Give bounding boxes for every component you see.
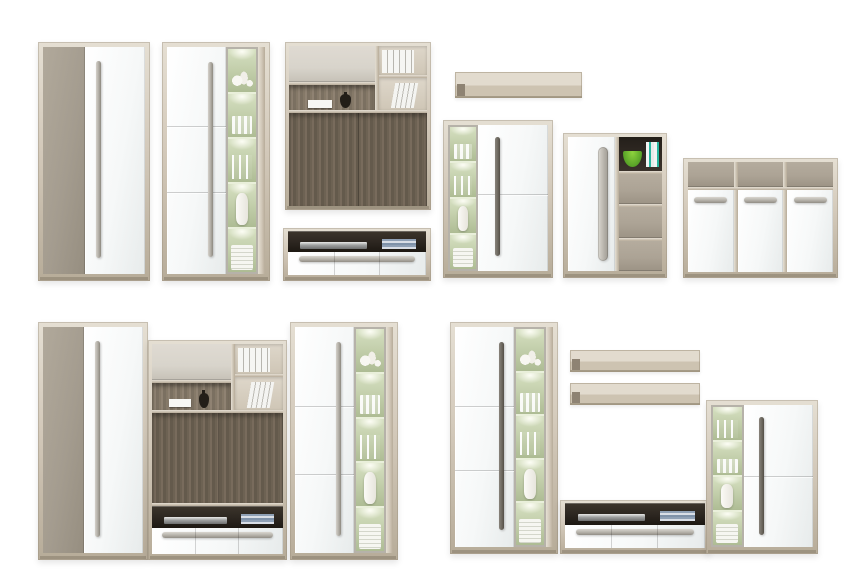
open-shelves	[379, 46, 427, 110]
display-shelf-glasses	[450, 127, 476, 163]
display-shelf-glasses	[713, 442, 742, 477]
display-cabinet-glass-right	[162, 42, 270, 281]
drawer-divider	[195, 528, 196, 554]
book-stack	[646, 142, 659, 166]
sideboard-door	[738, 190, 784, 272]
door-handle	[794, 197, 827, 203]
display-shelf-towels	[713, 512, 742, 545]
glass-showcase	[711, 405, 744, 547]
drawer-front	[152, 528, 283, 554]
dvd-player	[578, 514, 645, 521]
cabinet-body	[455, 327, 553, 547]
media-shelf	[288, 231, 426, 252]
upper-section	[289, 46, 427, 110]
wall-storage-unit	[285, 42, 431, 210]
lowboard-body	[565, 503, 705, 548]
wardrobe-right-door	[84, 327, 143, 553]
dvd-player	[300, 242, 366, 249]
wardrobe-right-door	[85, 47, 145, 274]
lowboard-body	[288, 231, 426, 275]
wardrobe	[38, 322, 148, 560]
dark-vase-item	[199, 393, 208, 408]
wardrobe-body	[43, 327, 143, 553]
drawer	[688, 162, 734, 187]
glass-showcase	[448, 125, 478, 271]
drawer	[619, 241, 662, 271]
display-shelf-vase	[516, 460, 544, 504]
shelf-books	[379, 78, 427, 110]
drawer	[738, 162, 784, 187]
door-seam	[167, 192, 226, 193]
cabinet-body	[448, 125, 548, 271]
display-shelf-stemware	[356, 419, 384, 464]
white-box-item	[308, 100, 332, 108]
display-shelf-towels	[450, 235, 476, 269]
cabinet-body	[295, 327, 393, 553]
book-stack	[241, 514, 274, 524]
sideboard-door	[787, 190, 833, 272]
door-band	[688, 190, 833, 272]
drawer	[619, 207, 662, 237]
display-shelf-glasses	[516, 373, 544, 417]
cabinet-body	[167, 47, 265, 274]
shelf-binders	[235, 344, 283, 374]
door-handle	[208, 62, 213, 257]
white-box-item	[169, 399, 191, 407]
media-wall-unit	[148, 340, 287, 560]
display-cabinet-glass-right	[290, 322, 398, 560]
wall-shelf	[570, 350, 700, 372]
drawer	[619, 174, 662, 204]
door-handle	[495, 137, 500, 256]
book-stack	[382, 239, 417, 249]
dark-vase-item	[340, 94, 350, 108]
drawer-handle	[162, 532, 272, 538]
open-compartment	[619, 137, 662, 171]
wall-shelf	[455, 72, 582, 98]
media-shelf	[152, 506, 283, 528]
tv-lowboard	[560, 500, 710, 554]
book-stack	[660, 511, 695, 521]
unit-body	[289, 46, 427, 206]
door-handle	[499, 342, 504, 530]
highboard	[563, 133, 667, 278]
flap-door	[152, 344, 231, 380]
sideboard	[683, 158, 838, 278]
drawer-column	[619, 137, 662, 271]
display-shelf-glasses	[356, 374, 384, 419]
door-seam	[167, 126, 226, 127]
wall-shelf	[570, 383, 700, 405]
display-shelf-glasses	[228, 94, 256, 139]
cabinet-body	[711, 405, 813, 547]
drawer-divider	[334, 252, 335, 275]
dark-oak-panel	[289, 113, 427, 206]
display-shelf-cups	[228, 49, 256, 94]
cabinet-door	[167, 47, 226, 274]
door-handle	[96, 61, 101, 258]
shelf-books	[235, 377, 283, 410]
display-shelf-stemware	[516, 416, 544, 460]
door-handle	[759, 417, 764, 535]
dark-oak-panel	[152, 413, 283, 503]
sideboard-door	[688, 190, 734, 272]
display-shelf-stemware	[228, 139, 256, 184]
flap-stack	[289, 46, 375, 110]
tv-lowboard	[283, 228, 431, 281]
flap-stack	[152, 344, 231, 410]
display-shelf-towels	[228, 229, 256, 272]
cabinet-door	[478, 125, 548, 271]
wardrobe-body	[43, 47, 145, 274]
door-handle	[95, 341, 100, 537]
glass-showcase	[354, 327, 386, 553]
display-shelf-vase	[713, 477, 742, 512]
display-cabinet-glass-left	[706, 400, 818, 554]
glass-showcase	[226, 47, 258, 274]
door-seam	[295, 474, 354, 475]
cabinet-door	[295, 327, 354, 553]
drawer-divider	[611, 525, 612, 548]
drawer-divider	[238, 528, 239, 554]
open-shelves	[235, 344, 283, 410]
door-seam	[455, 470, 514, 471]
display-shelf-vase	[228, 184, 256, 229]
display-shelf-cups	[356, 329, 384, 374]
wardrobe-left-door	[43, 327, 84, 553]
media-shelf	[565, 503, 705, 525]
wardrobe-left-door	[43, 47, 85, 274]
door-handle	[694, 197, 727, 203]
drawer-divider	[657, 525, 658, 548]
drawer-handle	[576, 529, 694, 535]
display-shelf-cups	[516, 329, 544, 373]
drawer	[787, 162, 833, 187]
door-seam	[478, 194, 548, 195]
highboard-door	[568, 137, 615, 271]
sideboard-body	[688, 162, 833, 272]
dvd-player	[164, 517, 227, 524]
frame-strip	[546, 327, 553, 547]
display-shelf-vase	[356, 463, 384, 508]
highboard-body	[568, 137, 662, 271]
display-shelf-vase	[450, 199, 476, 235]
display-shelf-stemware	[713, 407, 742, 442]
display-shelf-stemware	[450, 163, 476, 199]
cabinet-door	[744, 405, 813, 547]
glass-showcase	[514, 327, 546, 547]
door-handle	[598, 147, 608, 261]
frame-strip	[386, 327, 393, 553]
shelf-binders	[379, 46, 427, 75]
frame-strip	[258, 47, 265, 274]
door-seam	[295, 406, 354, 407]
drawer-divider	[379, 252, 380, 275]
open-niche	[152, 383, 231, 410]
catalog-collage	[0, 0, 865, 576]
cabinet-door	[455, 327, 514, 547]
display-cabinet-glass-right	[450, 322, 558, 554]
unit-body	[152, 344, 283, 554]
door-seam	[455, 406, 514, 407]
door-handle	[336, 342, 341, 536]
display-cabinet-glass-left	[443, 120, 553, 278]
door-seam	[744, 476, 813, 477]
open-niche	[289, 85, 375, 110]
drawer-band	[688, 162, 833, 187]
drawer-front	[565, 525, 705, 548]
drawer-front	[288, 252, 426, 275]
display-shelf-towels	[356, 508, 384, 551]
upper-section	[152, 344, 283, 410]
flap-door	[289, 46, 375, 82]
drawer-handle	[299, 256, 415, 262]
display-shelf-towels	[516, 503, 544, 545]
wardrobe	[38, 42, 150, 281]
green-bowl	[623, 151, 642, 167]
door-handle	[744, 197, 777, 203]
